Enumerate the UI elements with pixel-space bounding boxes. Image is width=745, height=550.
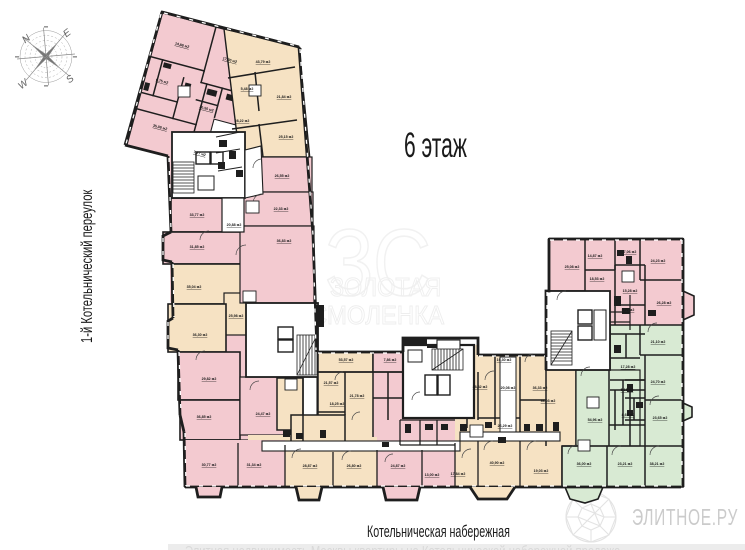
svg-text:36,00 м2: 36,00 м2 xyxy=(577,462,592,466)
svg-text:29,82 м2: 29,82 м2 xyxy=(202,377,217,381)
svg-text:15,28 м2: 15,28 м2 xyxy=(623,289,638,293)
svg-text:36,03 м2: 36,03 м2 xyxy=(541,399,556,403)
svg-text:28,87 м2: 28,87 м2 xyxy=(303,464,318,468)
svg-text:24,87 м2: 24,87 м2 xyxy=(391,464,406,468)
svg-text:Котельническая набережная: Котельническая набережная xyxy=(367,523,510,542)
svg-text:24,47 м2: 24,47 м2 xyxy=(256,412,271,416)
svg-text:31,34 м2: 31,34 м2 xyxy=(247,463,262,467)
svg-text:21,10 м2: 21,10 м2 xyxy=(651,340,666,344)
svg-text:Элитная недвижимость Москвы к: Элитная недвижимость Москвы квартиры на … xyxy=(185,542,621,550)
svg-text:28,22 м2: 28,22 м2 xyxy=(235,119,250,123)
svg-text:21,78 м2: 21,78 м2 xyxy=(350,394,365,398)
svg-text:36,33 м2: 36,33 м2 xyxy=(533,386,548,390)
svg-text:8,69 м2: 8,69 м2 xyxy=(622,413,635,417)
svg-text:25,98 м2: 25,98 м2 xyxy=(229,314,244,318)
svg-text:38,21 м2: 38,21 м2 xyxy=(650,462,665,466)
svg-text:СМОЛЕНКА: СМОЛЕНКА xyxy=(310,301,444,330)
svg-text:21,57 м2: 21,57 м2 xyxy=(324,381,339,385)
svg-text:14,87 м2: 14,87 м2 xyxy=(588,254,603,258)
svg-text:6 этаж: 6 этаж xyxy=(404,127,467,166)
svg-text:19,03 м2: 19,03 м2 xyxy=(534,469,549,473)
svg-text:33,77 м2: 33,77 м2 xyxy=(190,213,205,217)
svg-text:ЭЛИТНОЕ.РУ: ЭЛИТНОЕ.РУ xyxy=(632,505,738,531)
svg-text:7,06 м2: 7,06 м2 xyxy=(624,250,637,254)
svg-text:36,85 м2: 36,85 м2 xyxy=(197,415,212,419)
svg-text:17,84 м2: 17,84 м2 xyxy=(451,472,466,476)
svg-text:17,28 м2: 17,28 м2 xyxy=(621,365,636,369)
svg-text:40,90 м2: 40,90 м2 xyxy=(490,461,505,465)
svg-text:5,48 м2: 5,48 м2 xyxy=(241,87,254,91)
svg-text:36,83 м2: 36,83 м2 xyxy=(277,239,292,243)
svg-text:35,04 м2: 35,04 м2 xyxy=(187,285,202,289)
svg-text:ЗОЛОТАЯ: ЗОЛОТАЯ xyxy=(330,274,441,302)
svg-text:18,53 м2: 18,53 м2 xyxy=(590,277,605,281)
svg-text:26,55 м2: 26,55 м2 xyxy=(275,174,290,178)
svg-text:23,21 м2: 23,21 м2 xyxy=(618,462,633,466)
svg-text:26,28 м2: 26,28 м2 xyxy=(657,301,672,305)
svg-text:43,79 м2: 43,79 м2 xyxy=(256,60,271,64)
svg-text:26,29 м2: 26,29 м2 xyxy=(498,424,513,428)
svg-text:25,08 м2: 25,08 м2 xyxy=(565,265,580,269)
svg-text:1-й Котельнический переулок: 1-й Котельнический переулок xyxy=(77,189,96,343)
svg-text:5,15 м2: 5,15 м2 xyxy=(621,388,634,392)
svg-text:13,00 м2: 13,00 м2 xyxy=(425,473,440,477)
svg-text:21,84 м2: 21,84 м2 xyxy=(277,95,292,99)
svg-text:30,77 м2: 30,77 м2 xyxy=(202,463,217,467)
svg-text:20,08 м2: 20,08 м2 xyxy=(501,386,516,390)
svg-text:24,23 м2: 24,23 м2 xyxy=(651,259,666,263)
svg-text:54,96 м2: 54,96 м2 xyxy=(588,418,603,422)
svg-text:19,30 м2: 19,30 м2 xyxy=(497,358,512,362)
svg-text:20,88 м2: 20,88 м2 xyxy=(227,223,242,227)
svg-text:5,77 м2: 5,77 м2 xyxy=(622,308,635,312)
svg-text:26,80 м2: 26,80 м2 xyxy=(347,464,362,468)
svg-text:22,33 м2: 22,33 м2 xyxy=(274,207,289,211)
svg-text:36,30 м2: 36,30 м2 xyxy=(193,333,208,337)
svg-text:53,57 м2: 53,57 м2 xyxy=(339,358,354,362)
svg-text:28,82 м2: 28,82 м2 xyxy=(473,385,488,389)
svg-text:24,70 м2: 24,70 м2 xyxy=(651,380,666,384)
svg-text:25,15 м2: 25,15 м2 xyxy=(279,135,294,139)
svg-text:18,25 м2: 18,25 м2 xyxy=(330,402,345,406)
svg-text:31,85 м2: 31,85 м2 xyxy=(190,245,205,249)
svg-text:23,65 м2: 23,65 м2 xyxy=(653,416,668,420)
svg-text:7,86 м2: 7,86 м2 xyxy=(384,358,397,362)
